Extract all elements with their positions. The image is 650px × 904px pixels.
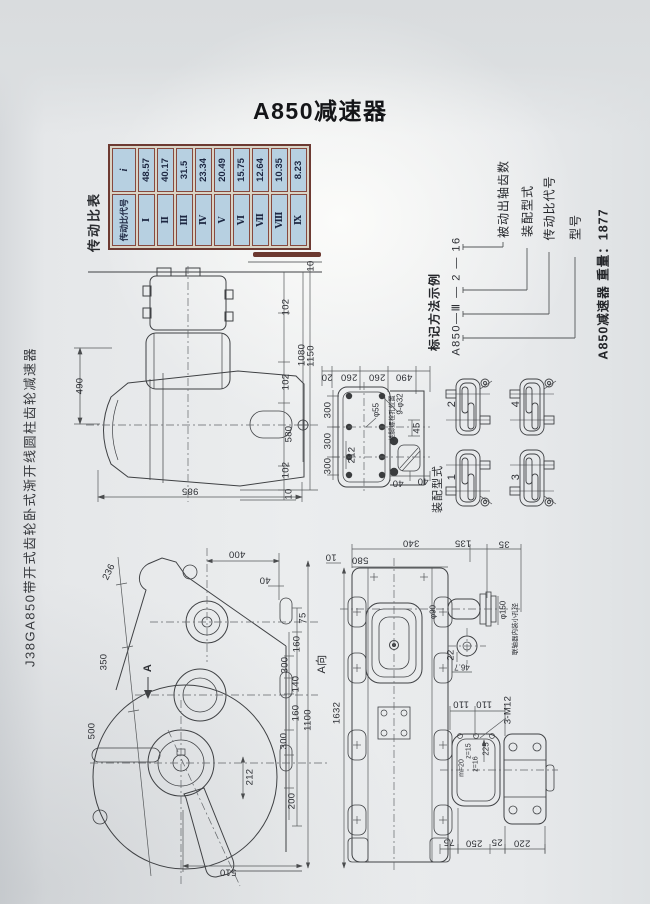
dim-35: 35	[498, 539, 509, 550]
dim-3-m12: 3-M12	[503, 696, 514, 724]
dim-46-7: 46.7	[454, 663, 470, 672]
dim-102-a: 102	[281, 299, 292, 316]
assembly-type-3-label: 3	[510, 474, 522, 480]
weight-note: A850减速器 重量：1877	[593, 208, 612, 359]
dim-490-height: 490	[75, 378, 86, 395]
dim-350: 350	[99, 654, 110, 671]
dim-140: 140	[291, 676, 302, 693]
marking-leader-lines	[463, 242, 575, 341]
assembly-type-2-label: 2	[446, 401, 458, 407]
marking-example-code: A850—Ⅲ — 2 — 16	[450, 236, 463, 355]
ratio-col-header-i: i	[112, 148, 136, 192]
assembly-type-4-label: 4	[510, 401, 522, 407]
dim-500: 500	[87, 723, 98, 740]
table-row: Ⅲ31.5	[176, 148, 193, 246]
dim-220: 220	[514, 838, 531, 849]
table-row: Ⅷ10.35	[271, 148, 288, 246]
marking-label-model: 型号	[567, 214, 584, 240]
dim-260-a: 260	[341, 372, 358, 383]
dim-110-a: 110	[453, 699, 469, 710]
product-side-caption: J38GA850带开式齿轮卧式渐开线圆柱齿轮减速器	[20, 347, 39, 667]
dim-40-b: 40	[417, 476, 428, 487]
dim-212-plan: 212	[347, 447, 358, 464]
marking-label-assembly-type: 装配型式	[519, 185, 536, 237]
dim-225: 225	[482, 742, 491, 755]
dim-300-b: 300	[323, 433, 334, 450]
dim-holes-9x32: 9-φ32	[396, 393, 405, 414]
ratio-table-caption: 传动比表	[84, 192, 103, 252]
marking-label-ratio-code: 传动比代号	[541, 175, 558, 240]
dim-110-b: 110	[476, 699, 492, 710]
scan-artifact-mark	[253, 252, 321, 257]
section-arrow-label: A	[142, 664, 154, 672]
dim-300-gear-a: 300	[280, 657, 291, 674]
dim-1632: 1632	[332, 702, 343, 724]
dim-985: 985	[182, 486, 199, 497]
marking-label-driven-teeth: 被动出轴齿数	[495, 160, 512, 238]
catalog-page: A850减速器 J38GA850带开式齿轮卧式渐开线圆柱齿轮减速器 传动比表 传…	[0, 0, 650, 904]
anchor-bolt-note: 地脚螺栓孔位置	[386, 395, 396, 441]
gear-teeth-label-2: z=16	[473, 756, 480, 771]
dim-1150: 1150	[306, 345, 317, 367]
dim-200: 200	[287, 793, 298, 810]
dim-bottom-10: 10	[284, 488, 295, 499]
dim-20: 20	[321, 372, 332, 383]
dim-22: 22	[446, 649, 457, 660]
dim-580: 580	[284, 426, 295, 443]
page-title: A850减速器	[253, 92, 387, 126]
table-row: Ⅶ12.64	[252, 148, 269, 246]
dim-400: 400	[229, 549, 246, 560]
dim-160-a: 160	[292, 636, 303, 653]
coupling-bore-note: 联轴器内装小孔径	[509, 603, 519, 655]
dim-490-plan: 490	[396, 372, 413, 383]
ratio-col-header-code: 传动比代号	[112, 194, 136, 246]
dim-160-b: 160	[291, 705, 302, 722]
gear-teeth-label-1: z=15	[466, 743, 473, 758]
dim-260-b: 260	[369, 372, 386, 383]
table-row: Ⅳ23.34	[195, 148, 212, 246]
assembly-type-diagrams	[446, 379, 556, 506]
dim-phi-90: φ90	[429, 605, 438, 619]
dim-300-gear-b: 300	[279, 733, 290, 750]
dim-250: 250	[466, 838, 483, 849]
dim-300-a: 300	[323, 402, 334, 419]
dim-75-gear: 75	[298, 612, 309, 623]
dim-340: 340	[403, 538, 420, 549]
dim-40-gear: 40	[259, 575, 270, 586]
table-row: Ⅱ40.17	[157, 148, 174, 246]
dim-top-10: 10	[306, 260, 317, 271]
dim-510: 510	[220, 867, 237, 878]
dim-102-b: 102	[281, 374, 292, 391]
table-row: Ⅰ48.57	[138, 148, 155, 246]
dim-10-front: 10	[325, 552, 336, 563]
dim-1100: 1100	[303, 709, 314, 731]
table-row: Ⅸ8.23	[290, 148, 307, 246]
dim-45: 45	[412, 422, 423, 433]
dim-40-a: 40	[392, 478, 403, 489]
dim-212-gear: 212	[245, 769, 256, 786]
view-direction-label: A向	[313, 655, 329, 674]
marking-caption: 标记方法示例	[426, 273, 443, 351]
front-view-drawing	[326, 544, 558, 872]
technical-drawing-canvas	[0, 0, 650, 904]
assembly-caption: 装配型式	[429, 465, 445, 513]
dim-25: 25	[491, 837, 502, 848]
transmission-ratio-table: 传动比代号 i Ⅰ48.57 Ⅱ40.17 Ⅲ31.5 Ⅳ23.34 Ⅴ20.4…	[108, 152, 287, 250]
table-row: Ⅵ15.75	[233, 148, 250, 246]
gear-module-label: m=20	[459, 759, 466, 777]
dim-phi-150: φ150	[499, 601, 508, 620]
dim-75-front: 75	[443, 837, 454, 848]
table-row: Ⅴ20.49	[214, 148, 231, 246]
dim-300-c: 300	[323, 458, 334, 475]
assembly-type-1-label: 1	[446, 474, 458, 480]
dim-bore-55: φ55	[372, 403, 381, 417]
dim-135: 135	[455, 538, 472, 549]
dim-580-front: 580	[352, 555, 369, 566]
dim-102-c: 102	[281, 462, 292, 479]
